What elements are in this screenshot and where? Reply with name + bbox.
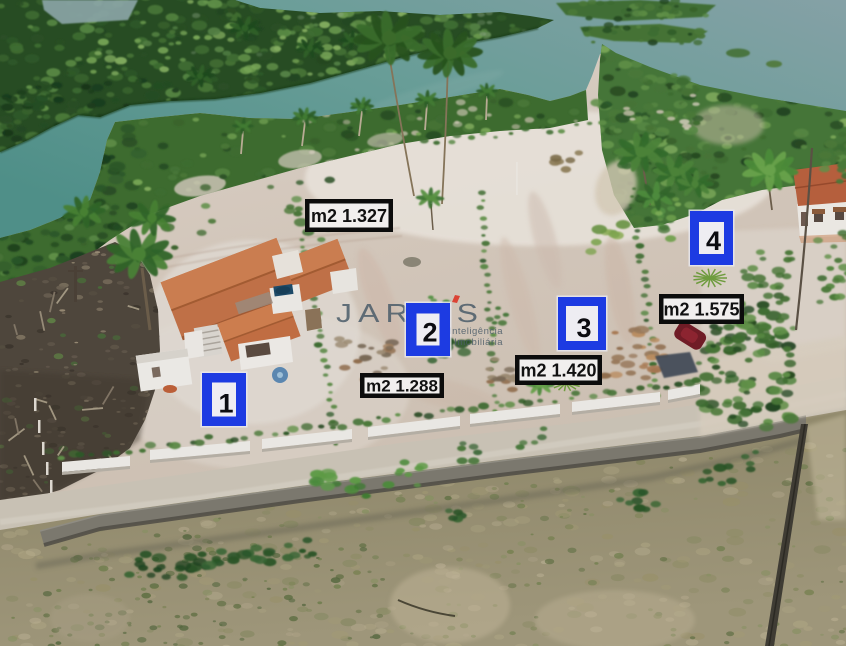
svg-text:Imobiliária: Imobiliária bbox=[454, 337, 503, 348]
svg-text:m2 1.327: m2 1.327 bbox=[311, 206, 387, 226]
svg-text:4: 4 bbox=[706, 226, 721, 256]
svg-text:m2 1.575: m2 1.575 bbox=[663, 299, 739, 319]
svg-text:3: 3 bbox=[576, 313, 591, 343]
svg-text:Inteligência: Inteligência bbox=[449, 326, 503, 337]
svg-text:m2 1.420: m2 1.420 bbox=[520, 360, 596, 380]
svg-text:2: 2 bbox=[422, 318, 437, 348]
svg-text:1: 1 bbox=[218, 389, 233, 419]
svg-text:m2 1.288: m2 1.288 bbox=[366, 377, 438, 396]
